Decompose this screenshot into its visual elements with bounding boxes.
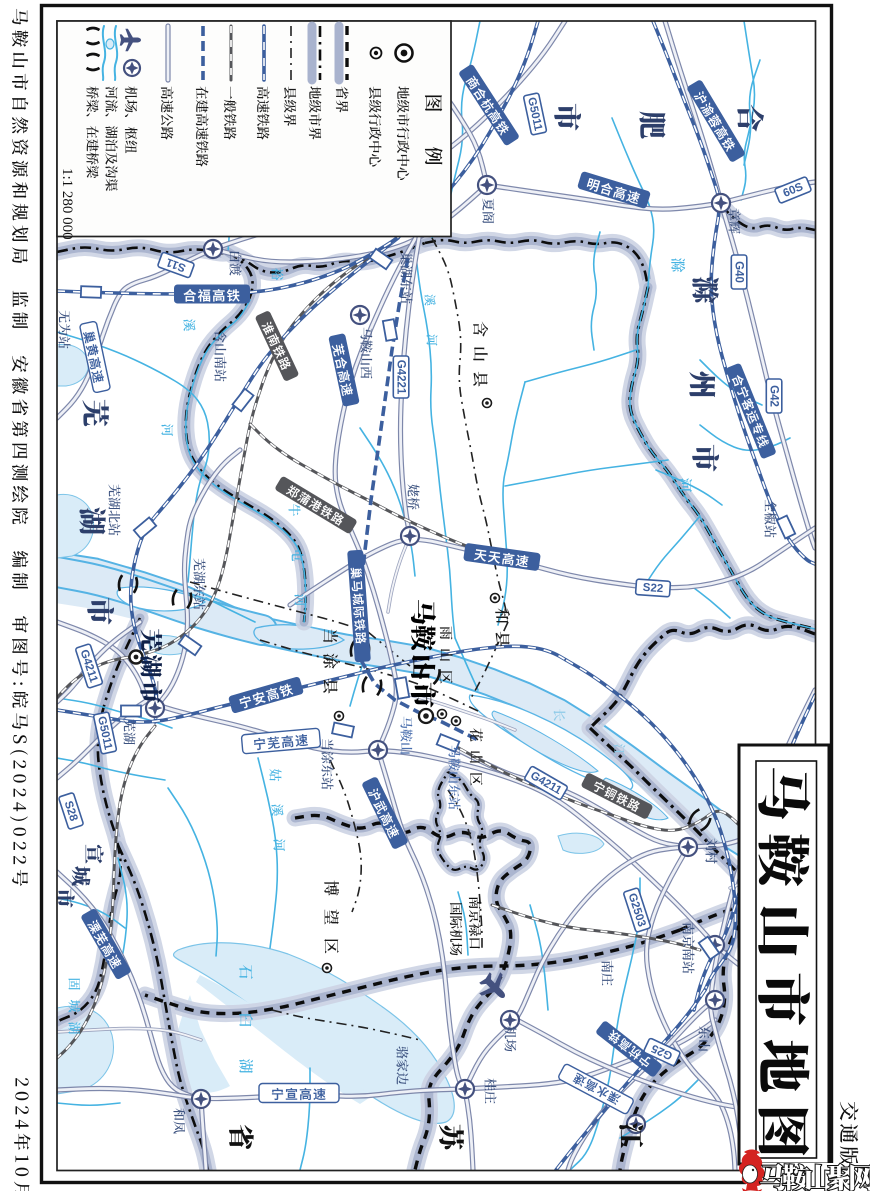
svg-text:县级界: 县级界 <box>281 86 301 127</box>
svg-text:裕: 裕 <box>269 267 288 280</box>
svg-text:马: 马 <box>748 766 825 820</box>
svg-text:合福高铁: 合福高铁 <box>183 285 241 305</box>
svg-text:长: 长 <box>551 708 570 721</box>
svg-text:当涂县: 当涂县 <box>320 628 343 703</box>
svg-text:河: 河 <box>675 477 696 492</box>
svg-text:宣: 宣 <box>81 844 110 864</box>
svg-text:国际机场: 国际机场 <box>447 902 467 956</box>
svg-text:姥桥: 姥桥 <box>405 484 424 510</box>
svg-text:芜湖东站: 芜湖东站 <box>191 558 210 610</box>
svg-text:市: 市 <box>686 444 726 472</box>
svg-text:高速铁路: 高速铁路 <box>254 86 274 140</box>
svg-text:白渡: 白渡 <box>227 250 246 276</box>
svg-text:和凤: 和凤 <box>171 1108 190 1134</box>
svg-text:花山区: 花山区 <box>466 728 486 794</box>
svg-text:市: 市 <box>136 681 169 704</box>
svg-text:芜湖北站: 芜湖北站 <box>106 484 125 536</box>
svg-text:一般铁路: 一般铁路 <box>221 86 241 140</box>
svg-text:当涂东站: 当涂东站 <box>319 738 338 790</box>
svg-text:县级行政中心: 县级行政中心 <box>366 86 386 167</box>
svg-text:G4221: G4221 <box>395 360 407 395</box>
svg-text:苏: 苏 <box>434 1124 471 1150</box>
svg-text:图: 图 <box>748 1104 825 1158</box>
svg-text:骆家边: 骆家边 <box>394 1046 413 1085</box>
svg-text:宁宣高速: 宁宣高速 <box>271 1084 327 1103</box>
svg-text:全椒站: 全椒站 <box>762 499 781 538</box>
svg-text:G40: G40 <box>733 261 745 283</box>
svg-text:江: 江 <box>614 1122 651 1148</box>
svg-text:博望区: 博望区 <box>321 880 344 967</box>
svg-text:南京禄口: 南京禄口 <box>466 896 486 950</box>
svg-text:在建高速铁路: 在建高速铁路 <box>193 86 213 167</box>
svg-text:臼: 臼 <box>236 1012 257 1027</box>
svg-text:滁: 滁 <box>686 276 726 304</box>
svg-text:姑: 姑 <box>267 768 286 781</box>
svg-text:河流、湖泊及沟渠: 河流、湖泊及沟渠 <box>103 86 122 192</box>
svg-text:无为站: 无为站 <box>56 310 75 349</box>
svg-text:桂庄: 桂庄 <box>482 1078 501 1104</box>
svg-text:高速公路: 高速公路 <box>158 86 178 140</box>
svg-text:含山南站: 含山南站 <box>212 330 231 382</box>
svg-text:屯: 屯 <box>289 548 308 561</box>
svg-text:S22: S22 <box>642 582 663 595</box>
svg-text:河: 河 <box>292 593 311 606</box>
svg-text:马鞍山: 马鞍山 <box>398 716 417 755</box>
svg-text:合: 合 <box>731 104 771 132</box>
svg-text:马: 马 <box>406 599 443 625</box>
svg-text:图: 图 <box>421 93 448 112</box>
svg-text:滁: 滁 <box>668 257 689 272</box>
svg-text:地级市行政中心: 地级市行政中心 <box>394 86 414 181</box>
svg-text:雨山区: 雨山区 <box>436 626 456 692</box>
svg-text:城: 城 <box>66 999 85 1012</box>
svg-text:芜湖: 芜湖 <box>121 719 140 745</box>
svg-text:溪: 溪 <box>269 803 288 816</box>
svg-text:河: 河 <box>159 423 178 436</box>
svg-text:夏阁: 夏阁 <box>480 198 499 224</box>
svg-text:芜: 芜 <box>76 399 116 427</box>
svg-text:马鞍山东站: 马鞍山东站 <box>446 745 465 810</box>
svg-text:石: 石 <box>236 964 257 979</box>
svg-text:机场、枢纽: 机场、枢纽 <box>122 86 142 154</box>
svg-text:溪: 溪 <box>181 318 200 331</box>
svg-text:溪: 溪 <box>422 294 439 306</box>
svg-text:例: 例 <box>421 146 448 165</box>
svg-text:省: 省 <box>224 1124 261 1150</box>
svg-text:河: 河 <box>424 334 441 346</box>
svg-text:东山: 东山 <box>696 1026 715 1052</box>
svg-text:州: 州 <box>683 371 723 399</box>
svg-text:桥梁、在建桥梁: 桥梁、在建桥梁 <box>84 86 103 178</box>
svg-text:G42: G42 <box>768 385 780 407</box>
svg-text:含山县: 含山县 <box>470 321 493 396</box>
svg-text:刘村: 刘村 <box>703 838 722 864</box>
svg-text:市: 市 <box>748 972 825 1026</box>
svg-text:河: 河 <box>271 838 290 851</box>
svg-text:2024年10月: 2024年10月 <box>10 1077 35 1191</box>
svg-text:地级市界: 地级市界 <box>306 86 326 140</box>
svg-text:江: 江 <box>611 743 630 756</box>
svg-text:城: 城 <box>68 866 97 886</box>
svg-text:省界: 省界 <box>333 86 353 113</box>
svg-text:湖: 湖 <box>136 655 169 678</box>
svg-text:市: 市 <box>81 597 121 625</box>
svg-text:湖: 湖 <box>66 1021 85 1034</box>
svg-text:固: 固 <box>66 977 85 990</box>
svg-text:马鞍山西: 马鞍山西 <box>358 327 377 379</box>
svg-text:网: 网 <box>848 1157 870 1191</box>
svg-text:牛: 牛 <box>286 503 305 516</box>
svg-text:市: 市 <box>548 103 588 131</box>
svg-text:湖: 湖 <box>236 1058 257 1073</box>
svg-text:芜: 芜 <box>136 629 169 652</box>
svg-text:1:1 280 000: 1:1 280 000 <box>59 168 75 240</box>
svg-text:机场: 机场 <box>502 1026 521 1052</box>
svg-text:南庄: 南庄 <box>599 960 618 986</box>
svg-text:和县: 和县 <box>492 608 515 654</box>
svg-text:肥: 肥 <box>633 111 673 139</box>
svg-text:鞍: 鞍 <box>748 833 825 887</box>
svg-text:马鞍山市自然资源和规划局 监制 安徽省第四测绘院 编制 审图: 马鞍山市自然资源和规划局 监制 安徽省第四测绘院 编制 审图号:皖马S(2024… <box>8 8 33 891</box>
svg-text:章辉: 章辉 <box>726 208 745 234</box>
svg-text:地: 地 <box>748 1039 825 1093</box>
svg-text:山: 山 <box>748 904 825 958</box>
svg-text:巢湖东站: 巢湖东站 <box>398 252 417 304</box>
svg-text:南京南站: 南京南站 <box>680 922 699 974</box>
